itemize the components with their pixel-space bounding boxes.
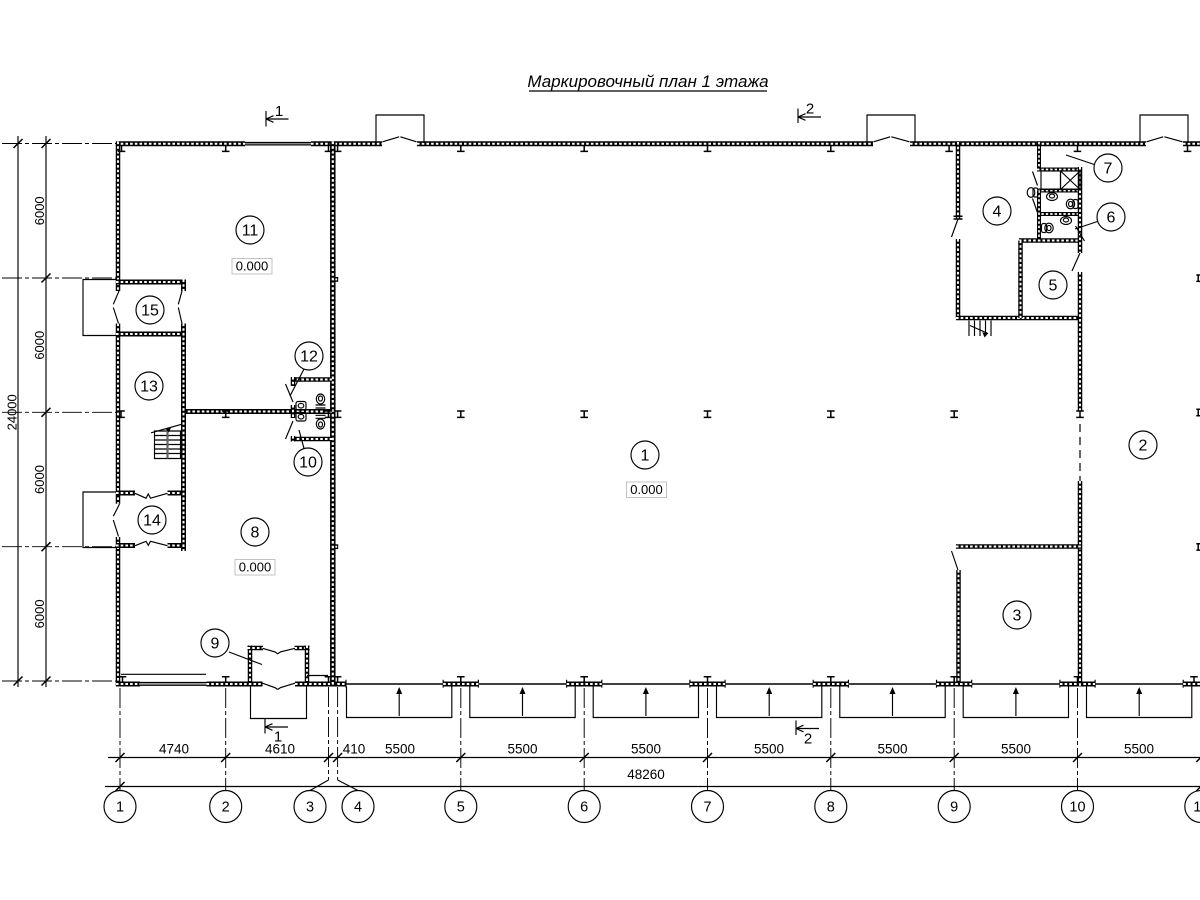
- svg-text:2: 2: [806, 101, 814, 118]
- svg-text:7: 7: [703, 800, 711, 816]
- svg-text:12: 12: [300, 349, 318, 366]
- svg-text:11: 11: [1193, 800, 1200, 816]
- svg-text:5500: 5500: [877, 742, 907, 757]
- svg-text:11: 11: [242, 223, 259, 240]
- svg-text:4740: 4740: [159, 742, 189, 757]
- svg-text:8: 8: [827, 800, 835, 816]
- svg-text:5500: 5500: [507, 742, 537, 757]
- svg-text:1: 1: [641, 448, 650, 465]
- svg-text:2: 2: [222, 800, 230, 816]
- svg-text:3: 3: [306, 800, 314, 816]
- svg-text:5: 5: [1049, 278, 1058, 295]
- svg-text:2: 2: [804, 731, 812, 748]
- svg-text:2: 2: [1139, 438, 1148, 455]
- svg-text:0.000: 0.000: [236, 259, 269, 274]
- svg-text:14: 14: [143, 513, 161, 530]
- svg-text:410: 410: [343, 742, 366, 757]
- svg-text:5500: 5500: [385, 742, 415, 757]
- svg-text:6000: 6000: [32, 196, 47, 225]
- svg-text:0.000: 0.000: [239, 560, 272, 575]
- svg-text:13: 13: [140, 379, 158, 396]
- svg-text:8: 8: [251, 525, 260, 542]
- svg-text:9: 9: [950, 800, 958, 816]
- svg-text:5500: 5500: [631, 742, 661, 757]
- svg-text:10: 10: [1069, 800, 1085, 816]
- svg-text:3: 3: [1013, 608, 1022, 625]
- svg-text:5500: 5500: [754, 742, 784, 757]
- svg-text:15: 15: [141, 303, 159, 320]
- svg-text:24000: 24000: [5, 394, 20, 430]
- svg-text:5: 5: [457, 800, 465, 816]
- svg-text:9: 9: [211, 636, 220, 653]
- svg-text:1: 1: [275, 103, 283, 120]
- svg-text:4: 4: [354, 800, 362, 816]
- svg-text:6000: 6000: [32, 331, 47, 360]
- svg-text:6: 6: [580, 800, 588, 816]
- svg-text:0.000: 0.000: [630, 482, 663, 497]
- svg-text:7: 7: [1104, 161, 1113, 178]
- svg-text:1: 1: [116, 800, 124, 816]
- svg-text:6000: 6000: [32, 465, 47, 494]
- svg-text:6000: 6000: [32, 599, 47, 628]
- svg-text:5500: 5500: [1001, 742, 1031, 757]
- svg-text:4: 4: [993, 204, 1002, 221]
- svg-text:1: 1: [274, 729, 282, 746]
- svg-text:6: 6: [1107, 210, 1116, 227]
- svg-text:5500: 5500: [1124, 742, 1154, 757]
- svg-text:Маркировочный план 1 этажа: Маркировочный план 1 этажа: [527, 72, 768, 91]
- svg-text:48260: 48260: [627, 767, 665, 782]
- svg-text:10: 10: [299, 455, 317, 472]
